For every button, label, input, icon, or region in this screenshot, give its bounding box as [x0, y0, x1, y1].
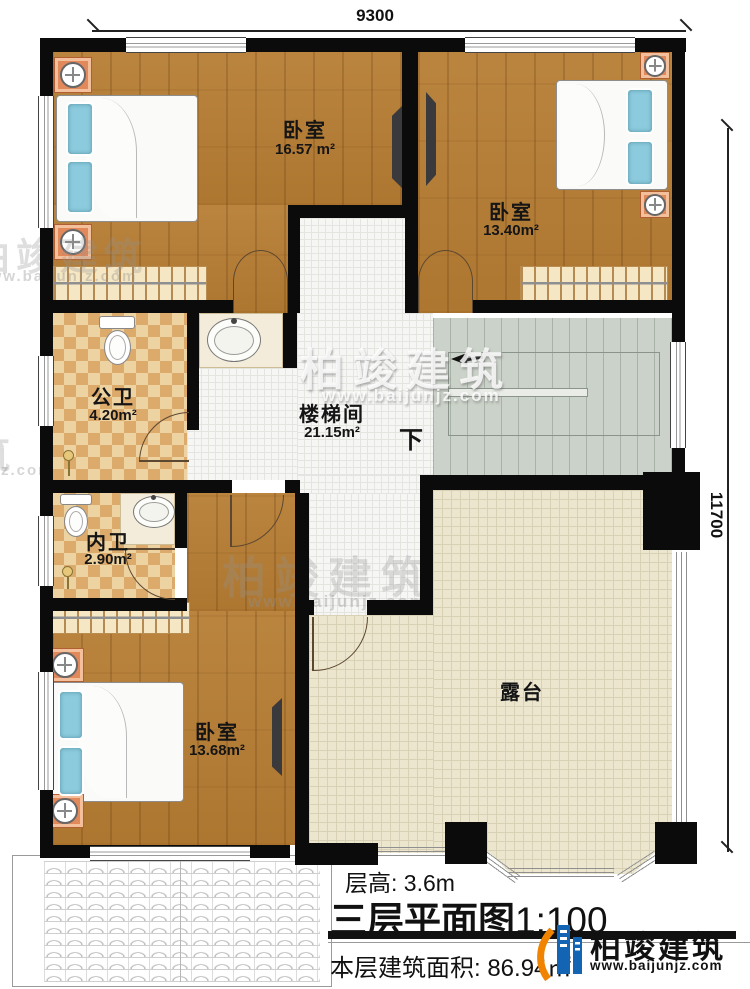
window-right-stairwell: [670, 342, 686, 448]
bed-tr-pillow-1: [626, 88, 654, 134]
terrace-pillar-left: [445, 822, 487, 864]
wall-terrace-sw-block: [295, 843, 378, 865]
window-left-1: [38, 96, 54, 228]
right-dimension-label: 11700: [706, 492, 726, 538]
wall-inner-bath-right: [175, 493, 187, 548]
bed-bottom-pillow-1: [58, 690, 84, 740]
door-bedroom-bottom-leaf: [230, 495, 232, 547]
bed-tl-pillow-2: [66, 160, 94, 214]
wall-corridor-bottom: [367, 600, 433, 615]
bed-bottom-pillow-2: [58, 746, 84, 796]
window-top-right: [465, 37, 635, 53]
door-terrace-leaf: [312, 617, 314, 671]
roof-center-line: [180, 861, 181, 982]
bed-tr-pillow-2: [626, 140, 654, 186]
wall-bath-divider-left: [40, 480, 232, 493]
lamp-icon: [60, 62, 86, 88]
tv-bedroom-tr-icon: [426, 92, 436, 186]
corridor-tile-left: [187, 368, 297, 480]
window-top-left: [126, 37, 246, 53]
wall-vanity-right: [283, 313, 297, 368]
roof-tile-pattern: [44, 861, 320, 982]
corridor-tile-low1: [297, 475, 420, 493]
wall-bedroom-tl-bottom: [40, 300, 233, 313]
nightstand-tr-bottom: [640, 191, 670, 218]
toilet-inner-bath-bowl-icon: [64, 506, 88, 537]
floor-drain-public-bath-icon: [63, 450, 74, 461]
wall-bedroom-tr-bottom: [473, 300, 672, 313]
logo-building-icon: [536, 922, 584, 982]
wall-terrace-door-jamb: [309, 600, 314, 615]
wardrobe-tr: [520, 266, 668, 301]
bedroom-tr-name: 卧室: [489, 196, 533, 225]
public-bath-name: 公卫: [91, 381, 135, 410]
door-inner-bath-leaf: [125, 548, 175, 550]
sink-public-vanity-basin: [214, 326, 254, 355]
nightstand-tl-top: [54, 57, 92, 93]
floor-drain-stem: [68, 461, 70, 476]
bedroom-tl-area: 16.57 m²: [275, 141, 335, 158]
wall-corridor-top: [288, 205, 418, 218]
wall-inner-bath-bottom: [40, 598, 187, 611]
window-left-4: [38, 672, 54, 790]
bedroom-bottom-area: 13.68m²: [189, 742, 245, 759]
wall-corridor-left-upper: [288, 218, 300, 313]
top-dimension-label: 9300: [356, 6, 394, 26]
public-bath-area: 4.20m²: [89, 407, 137, 424]
bedroom-bottom-name: 卧室: [195, 716, 239, 745]
top-dimension-line: [92, 30, 686, 32]
toilet-public-bath-bowl-icon: [104, 330, 131, 365]
toilet-inner-bath-icon: [60, 494, 92, 505]
lamp-icon: [644, 194, 666, 216]
tv-bedroom-bottom-icon: [272, 698, 282, 776]
wall-between-top-bedrooms: [402, 38, 418, 215]
terrace-floor-right: [433, 490, 672, 853]
watermark-url-1: www.baijunjz.com: [0, 268, 137, 285]
wall-bedroom-bottom-right: [295, 493, 309, 858]
lamp-icon: [52, 652, 78, 678]
terrace-name: 露台: [500, 676, 544, 705]
wall-terrace-top: [433, 475, 672, 490]
floor-drain-inner-bath-icon: [62, 566, 73, 577]
tv-bedroom-tl-icon: [392, 106, 402, 188]
bedroom-tl-name: 卧室: [283, 114, 327, 143]
stairwell-name: 楼梯间: [299, 398, 365, 427]
toilet-public-bath-icon: [99, 316, 135, 329]
window-left-2: [38, 356, 54, 426]
terrace-railing-bottom: [508, 868, 614, 879]
logo-swoosh: [541, 930, 552, 979]
stairs-down-label: 下: [399, 420, 423, 455]
door-public-bath-leaf: [139, 460, 189, 462]
bedroom-tr-area: 13.40m²: [483, 222, 539, 239]
window-left-3: [38, 516, 54, 586]
window-bottom-bedroom: [90, 846, 250, 861]
wall-terrace-corner-block: [643, 472, 700, 550]
terrace-railing-right: [676, 552, 689, 822]
bed-tl-pillow-1: [66, 102, 94, 156]
right-dimension-line: [727, 128, 729, 852]
floor-drain-stem: [67, 577, 69, 589]
floor-plan-canvas: 9300 11700 柏竣建筑 www.baijunjz.com 柏竣建筑 ww…: [0, 0, 750, 989]
terrace-pillar-right: [655, 822, 697, 864]
faucet-icon: [231, 318, 237, 324]
wall-corridor-right-upper: [405, 218, 418, 313]
lamp-icon: [644, 55, 666, 77]
door-bedroom-tl: [233, 250, 288, 313]
logo: [536, 922, 584, 987]
inner-bath-area: 2.90m²: [84, 551, 132, 568]
faucet-icon: [151, 495, 156, 500]
door-bedroom-tr: [418, 250, 473, 313]
stairwell-area: 21.15m²: [304, 424, 360, 441]
sink-inner-bath-basin: [139, 502, 169, 522]
wall-corridor-right-lower: [420, 475, 433, 615]
corridor-tile-upper: [297, 218, 405, 313]
logo-url: www.baijunjz.com: [590, 958, 723, 973]
lamp-icon: [52, 798, 78, 824]
terrace-railing-left: [378, 847, 445, 858]
nightstand-tr-top: [640, 52, 670, 79]
wall-bath-divider-right: [285, 480, 300, 493]
